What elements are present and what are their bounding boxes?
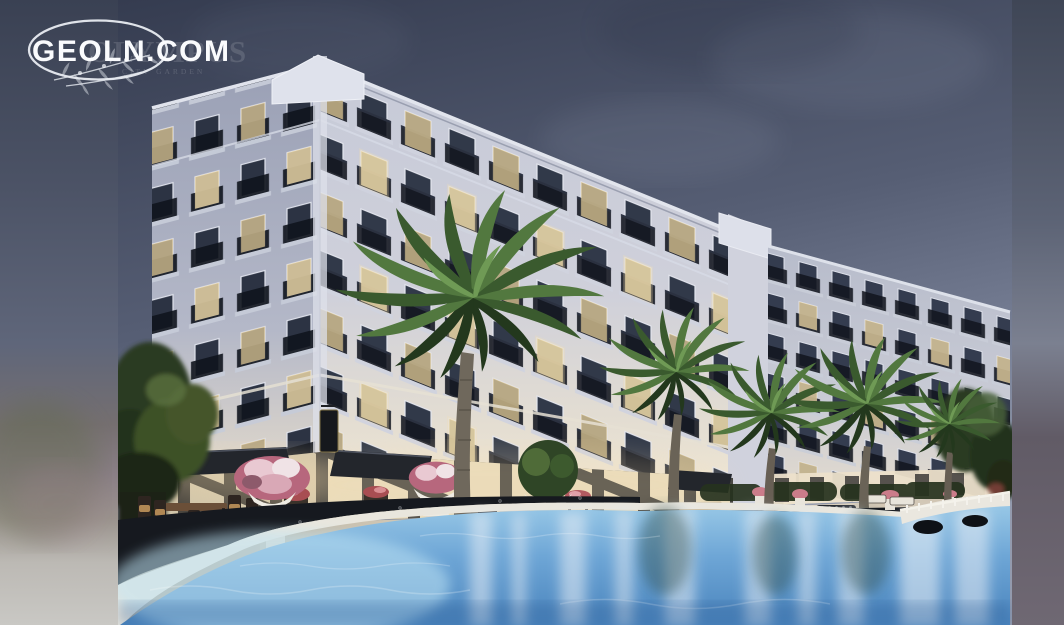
deep-water-shadow (118, 602, 1010, 625)
scene-canvas: OLYMPUS CITY GARDEN GEOLN.COM (0, 0, 1064, 625)
property-photo: OLYMPUS CITY GARDEN GEOLN.COM (0, 0, 1064, 625)
left-band-pink-tint (10, 465, 110, 545)
poolside-shrubs (700, 482, 965, 501)
brand-wordmark: GEOLN.COM (32, 35, 231, 68)
hanging-bar-sign (320, 406, 338, 452)
blurred-edge-band-right (1012, 0, 1064, 625)
